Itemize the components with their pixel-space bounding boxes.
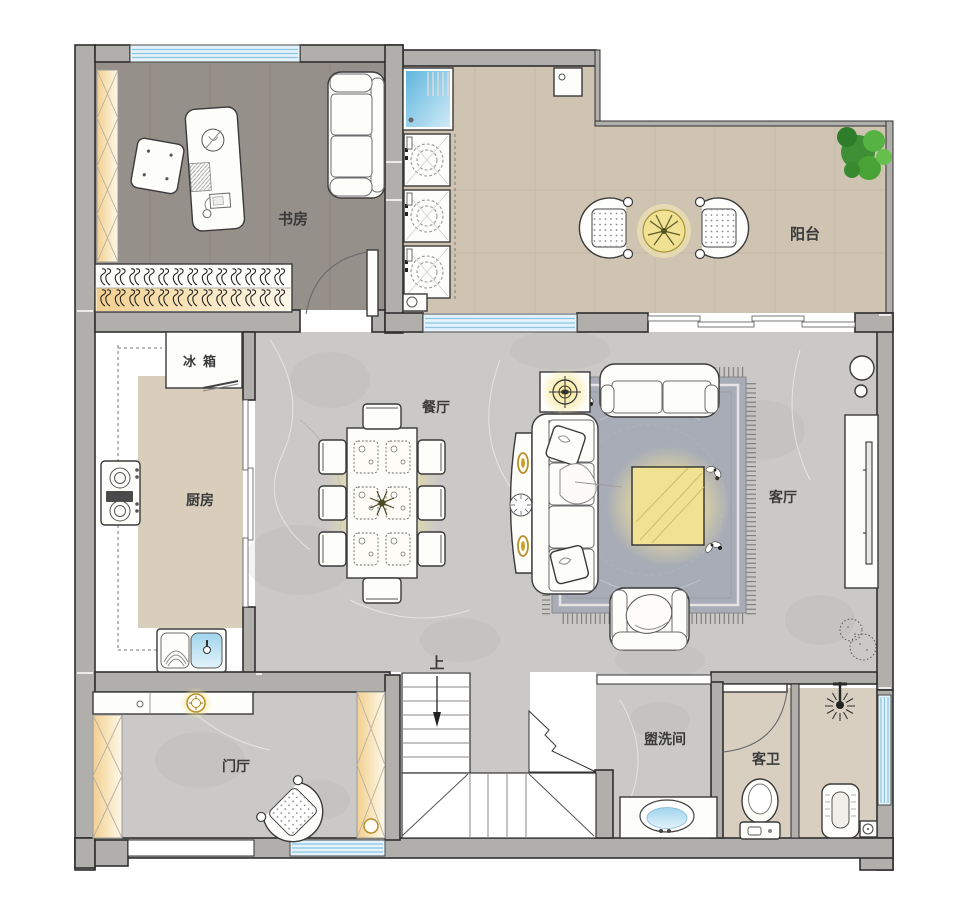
wall-balcony-south-pillar — [577, 313, 648, 332]
stair-side-floor — [596, 672, 613, 771]
sliding-door-living-balcony — [648, 316, 855, 327]
label-stairs-up: 上 — [429, 655, 444, 672]
foyer-console — [93, 687, 253, 719]
loveseat — [600, 364, 719, 417]
wall-top-a — [95, 45, 130, 62]
wall-kitchen-east-a — [243, 332, 255, 400]
washroom-beam — [597, 675, 711, 684]
stove — [101, 461, 140, 525]
tv-console — [845, 415, 878, 588]
label-foyer: 门厅 — [222, 758, 250, 774]
stair-void-floor — [470, 672, 530, 774]
floor-plan: 书房 阳台 冰箱 厨房 餐厅 客厅 门厅 上 盥洗间 客卫 — [0, 0, 960, 909]
washroom-items — [620, 797, 717, 838]
wall-balcony-south-b — [855, 313, 893, 332]
balcony-chair-left — [579, 198, 632, 259]
wall-balcony-south-a — [385, 313, 423, 332]
foyer-wardrobe-left — [93, 715, 122, 838]
laundry-sink — [403, 68, 453, 130]
sofa-pillow-bottom — [549, 545, 589, 585]
sofa-console — [510, 433, 532, 573]
label-living: 客厅 — [768, 489, 797, 505]
tv — [866, 442, 872, 564]
bath-floor-drain — [860, 821, 877, 837]
study-wardrobe — [97, 70, 118, 262]
floor-plan-drawing: 书房 阳台 冰箱 厨房 餐厅 客厅 门厅 上 盥洗间 客卫 — [0, 0, 960, 909]
label-fridge: 冰箱 — [183, 354, 223, 369]
wall-study-balcony — [385, 45, 403, 333]
wall-right-living — [877, 313, 893, 690]
washing-machines — [404, 134, 455, 300]
side-lamp-table — [540, 368, 590, 416]
toilet — [740, 779, 780, 839]
wall-balcony-top — [403, 50, 596, 66]
bottom-opening — [128, 840, 254, 856]
coffee-table — [606, 446, 730, 566]
stair-flight-lower — [402, 773, 596, 838]
label-washroom: 盥洗间 — [644, 731, 686, 747]
wall-stair-west — [385, 675, 400, 840]
balcony-tea-table — [637, 204, 691, 258]
window-bath-right — [878, 695, 891, 805]
wall-bath-divider — [791, 684, 799, 838]
wall-study-south — [95, 310, 300, 332]
study-sofa — [328, 72, 385, 198]
study-coat-rack — [95, 264, 292, 312]
balcony-floor-drain — [403, 294, 427, 311]
window-study-top — [130, 45, 300, 62]
wall-kitchen-foyer — [95, 672, 390, 692]
label-dining: 餐厅 — [421, 399, 450, 415]
label-kitchen: 厨房 — [186, 492, 214, 508]
wall-stair-east — [595, 770, 613, 838]
foyer-wardrobe-right — [357, 692, 385, 838]
balcony-chair-right — [696, 198, 749, 259]
armchair — [610, 588, 689, 650]
study-chair — [130, 137, 185, 194]
stair-break-piece — [529, 711, 596, 772]
study-desk — [185, 106, 245, 231]
wall-balcony-parapet — [595, 121, 893, 126]
window-foyer-bottom — [290, 840, 385, 856]
wall-balcony-step-v — [595, 50, 600, 125]
kitchen-sink — [157, 629, 226, 672]
wall-bath-north — [711, 672, 877, 684]
washroom-vanity — [620, 797, 717, 838]
label-study: 书房 — [278, 210, 308, 228]
balcony-wall-box — [554, 68, 582, 96]
label-balcony: 阳台 — [790, 225, 820, 243]
wall-corner-bl — [75, 838, 95, 868]
window-balcony-south — [423, 314, 577, 332]
wall-bottom-block — [95, 840, 128, 866]
label-guest-bath: 客卫 — [751, 751, 780, 767]
wall-left — [75, 45, 95, 870]
squat-pan — [822, 784, 859, 838]
